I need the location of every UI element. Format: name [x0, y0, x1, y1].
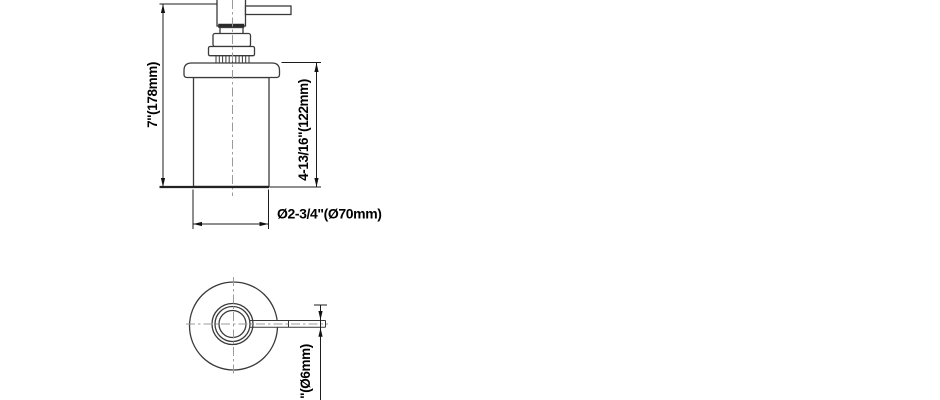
dimension-spout-diameter: "(Ø6mm) — [298, 305, 327, 400]
technical-drawing-page: 7"(178mm) 4-13/16"(122mm) Ø2-3/4"(Ø70mm) — [0, 0, 940, 400]
pump-flange — [209, 47, 255, 56]
arrowhead-down — [161, 178, 165, 187]
technical-drawing-canvas: 7"(178mm) 4-13/16"(122mm) Ø2-3/4"(Ø70mm) — [0, 0, 940, 400]
body-height-label: 4-13/16"(122mm) — [296, 79, 311, 181]
bottle-shoulder — [184, 63, 280, 78]
arrowhead-left — [193, 222, 202, 226]
front-view — [160, 0, 292, 196]
dimension-body-height: 4-13/16"(122mm) — [270, 63, 322, 188]
body-diameter-label: Ø2-3/4"(Ø70mm) — [277, 205, 382, 221]
bottle-body — [194, 78, 270, 187]
spout-diameter-label: "(Ø6mm) — [298, 344, 313, 399]
pump-head — [217, 0, 246, 26]
arrowhead-up — [314, 63, 318, 72]
pump-spout — [246, 6, 292, 15]
arrowhead-down — [314, 178, 318, 187]
arrowhead-up — [161, 4, 165, 13]
arrowhead-up — [318, 328, 322, 337]
overall-height-label: 7"(178mm) — [145, 62, 160, 128]
arrowhead-right — [260, 222, 269, 226]
pump-collar — [213, 34, 251, 47]
arrowhead-down — [318, 311, 322, 320]
dimension-body-diameter: Ø2-3/4"(Ø70mm) — [193, 190, 382, 230]
